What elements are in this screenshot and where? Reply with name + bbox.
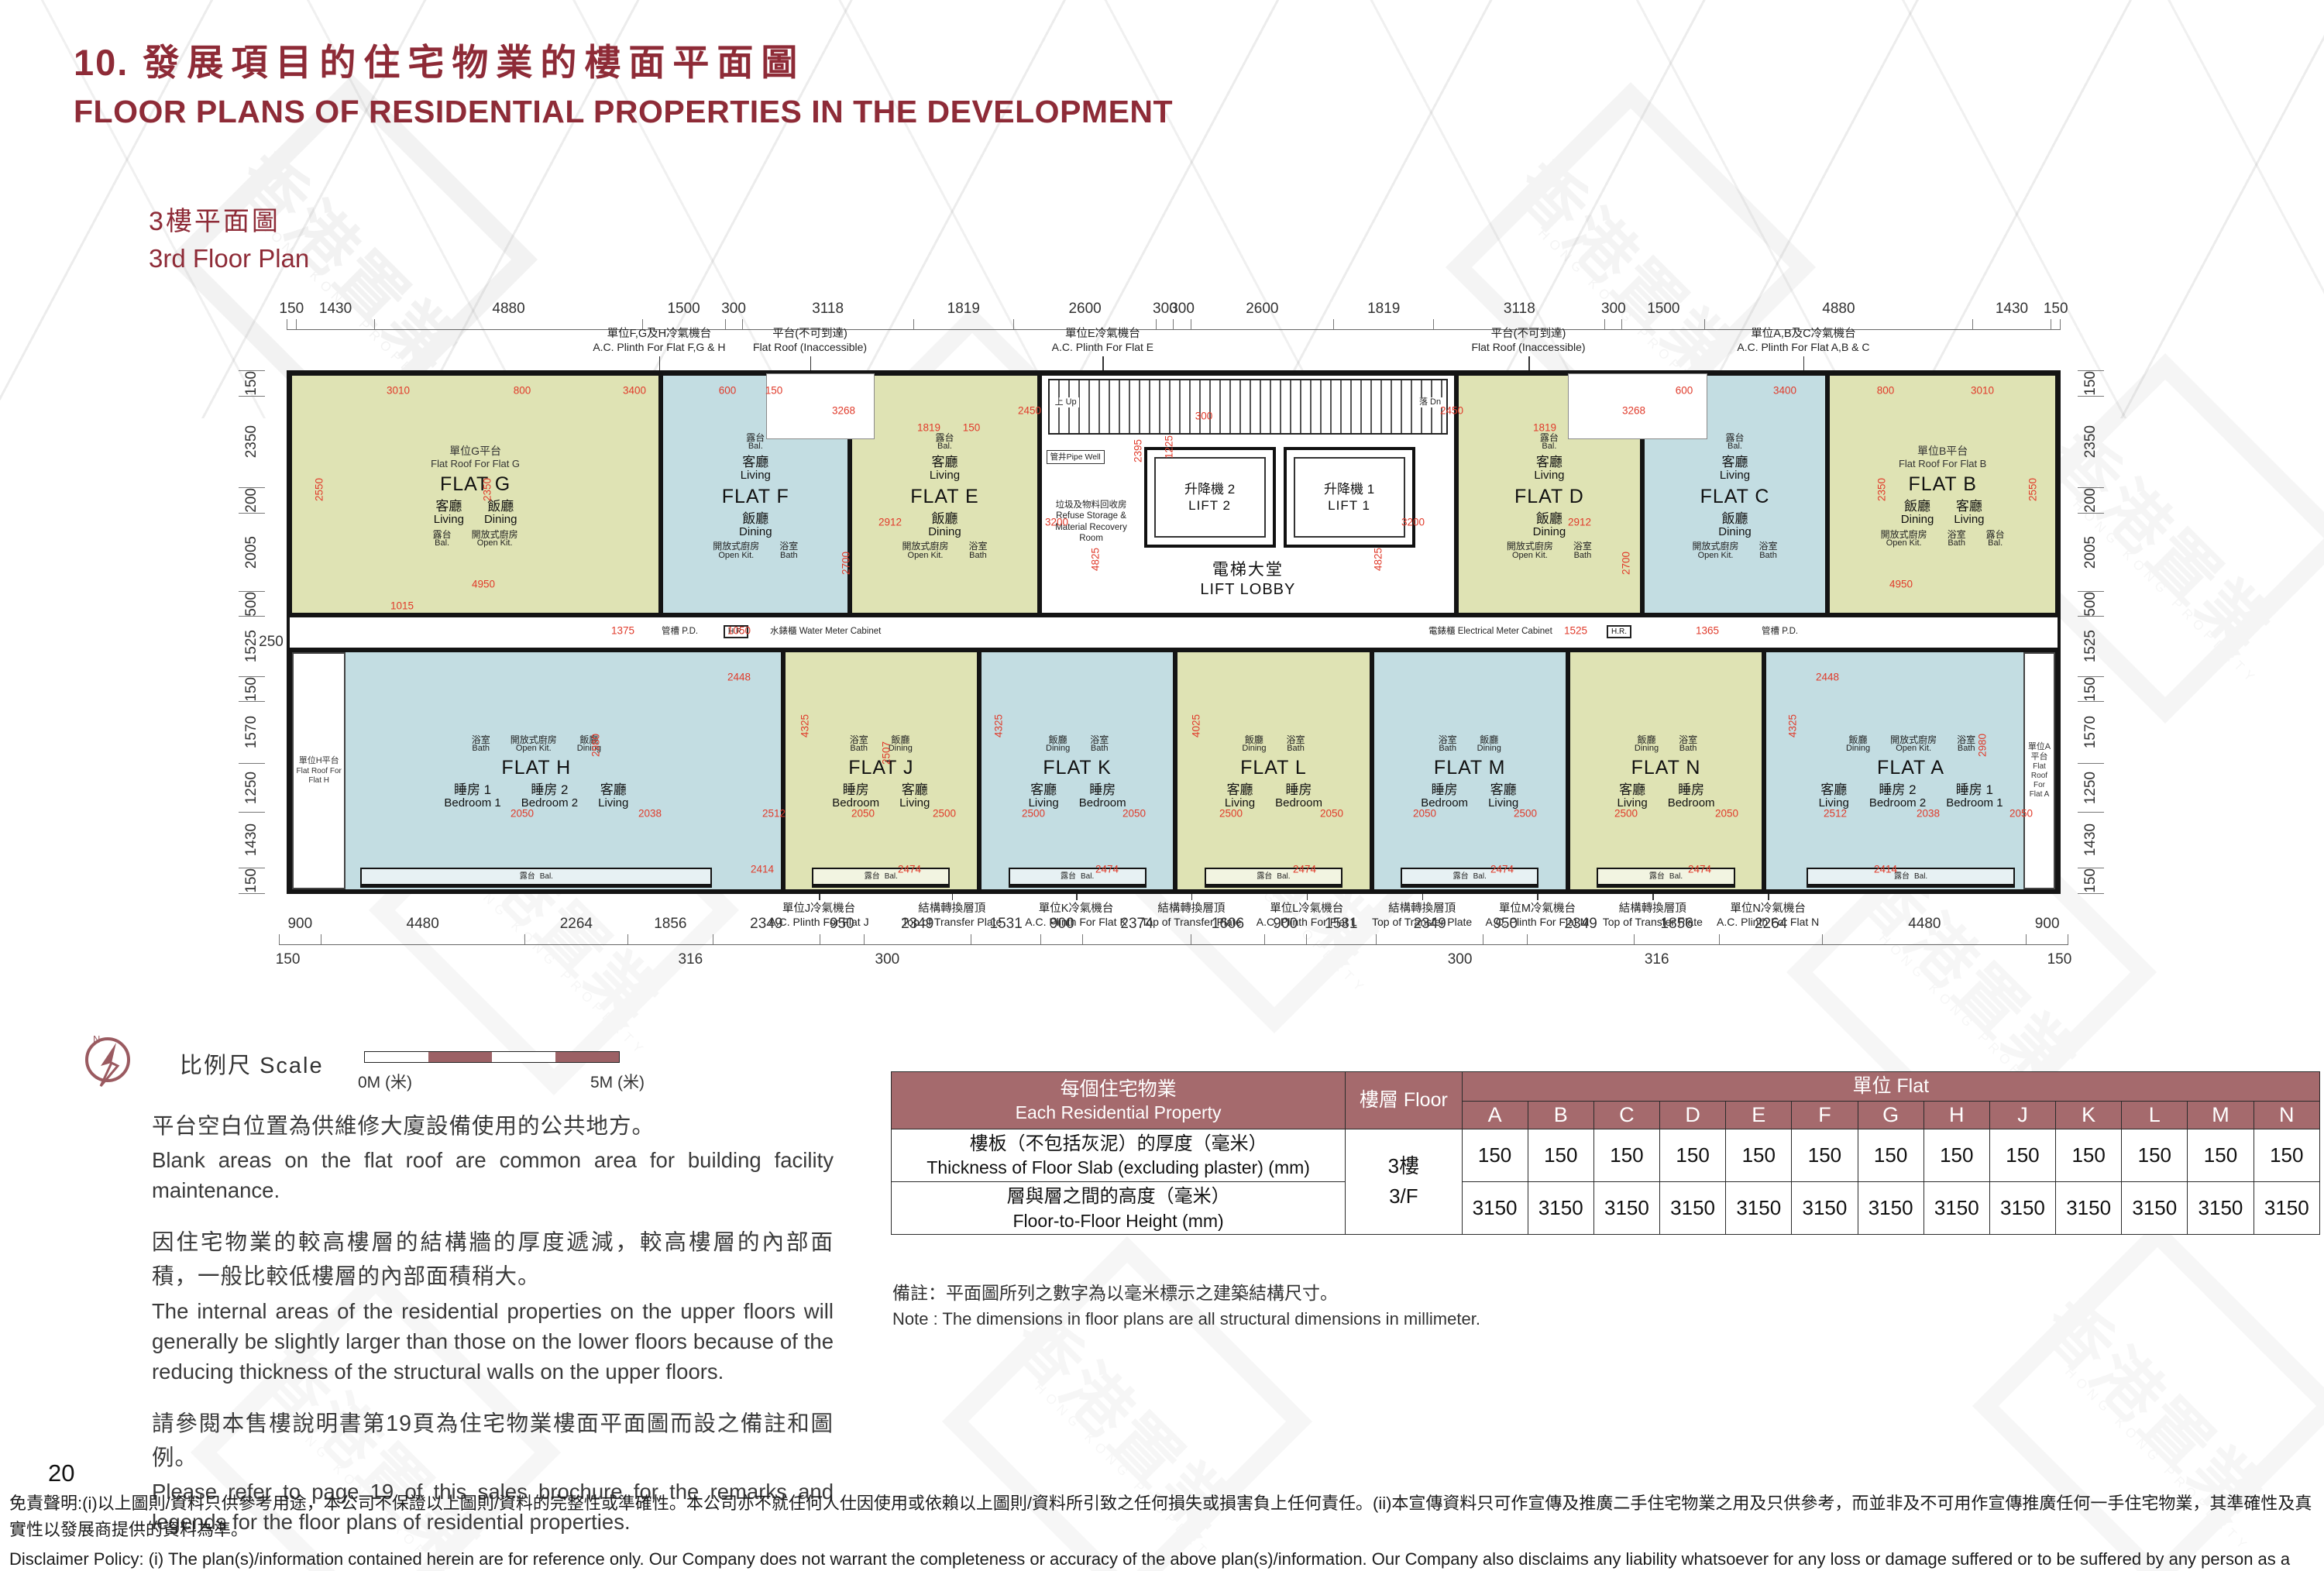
plan-annotation-zh: 單位M冷氣機台	[1486, 902, 1590, 916]
room-label-zh: 睡房	[1668, 782, 1715, 797]
room-label: 客廳Living	[1617, 782, 1647, 810]
row-label-zh: 樓板（不包括灰泥）的厚度（毫米）	[895, 1131, 1342, 1157]
balcony-label-en: Bal.	[885, 873, 898, 881]
flat-name: FLAT A	[1877, 757, 1944, 779]
col-header-property: 每個住宅物業Each Residential Property	[892, 1072, 1346, 1129]
col-header-floor-label: 樓層 Floor	[1349, 1088, 1458, 1113]
flat-roof-inaccessible-area	[766, 373, 875, 439]
red-dimension: 2980	[1977, 734, 1988, 757]
dimension-value: 4480	[407, 916, 439, 933]
red-dimension: 3200	[1045, 517, 1068, 528]
annotation-leader-line	[1191, 894, 1193, 900]
room-label-small-en: Open Kit.	[511, 744, 557, 754]
section-title-en: FLOOR PLANS OF RESIDENTIAL PROPERTIES IN…	[74, 94, 1173, 130]
dimension-segment: 2005	[239, 513, 265, 591]
room-label-small-en: Open Kit.	[1693, 552, 1739, 561]
flat-name: FLAT G	[440, 473, 511, 496]
flat-roof-label: 單位H平台Flat Roof For Flat H	[294, 756, 344, 785]
dimension-value: 2600	[1068, 301, 1101, 318]
value-cell: 150	[1593, 1129, 1659, 1181]
room-label-small-en: Dining	[1242, 744, 1266, 754]
room-label-en: Living	[1534, 469, 1564, 483]
small-labels-row: 露台Bal.	[746, 433, 765, 452]
dimension-value: 900	[287, 916, 312, 933]
dimension-segment: 950	[1483, 934, 1527, 945]
balcony: 露台Bal.	[360, 868, 712, 888]
small-labels-row: 浴室Bath開放式廚房Open Kit.飯廳Dining	[472, 735, 601, 754]
dimension-value: 1525	[243, 630, 260, 662]
room-label-small-en: Bath	[1957, 744, 1975, 754]
dimension-segment: 500	[2078, 591, 2104, 617]
row-label-en: Thickness of Floor Slab (excluding plast…	[895, 1157, 1342, 1180]
dimension-value: 1430	[2082, 823, 2099, 856]
dimension-segment: 4480	[1822, 934, 2026, 945]
room-label-small: 浴室Bath	[1957, 735, 1975, 754]
dimension-segment: 900	[1040, 934, 1082, 945]
room-label-small: 露台Bal.	[1986, 530, 2005, 548]
balcony-label-en: Bal.	[1914, 873, 1927, 881]
red-dimension: 2500	[1022, 808, 1045, 819]
annotation-leader-line	[1537, 894, 1538, 900]
dimension-value: 2349	[1565, 916, 1597, 933]
balcony-label-zh: 露台	[1061, 873, 1076, 881]
room-label-zh: 客廳	[598, 782, 628, 797]
plan-annotation-en: Flat Roof (Inaccessible)	[1471, 341, 1585, 355]
dimension-segment: 200	[239, 487, 265, 513]
dimension-value: 1606	[1212, 916, 1244, 933]
pipe-duct-label: 管槽 P.D.	[662, 627, 698, 638]
dimension-value: 316	[1645, 951, 1669, 968]
brochure-page: 香港置業HONG KONG PROPERTY香港置業HONG KONG PROP…	[0, 0, 2324, 1571]
rooms-row: 客廳Living睡房Bedroom	[1225, 782, 1322, 810]
room-label-zh: 飯廳	[739, 511, 772, 526]
red-dimension: 4950	[472, 579, 495, 590]
flat-name: FLAT F	[722, 486, 789, 508]
dimension-segment: 150	[239, 676, 265, 702]
flat-j: 浴室Bath飯廳DiningFLAT J睡房Bedroom客廳Living露台B…	[783, 650, 979, 892]
room-label-zh: 睡房 1	[444, 782, 500, 797]
dimension-segment: 1430	[1972, 319, 2051, 330]
dimension-segment: 2005	[2078, 513, 2104, 591]
rooms-row: 客廳Living飯廳Dining	[434, 499, 517, 527]
dimension-segment: 2600	[1191, 319, 1333, 330]
red-dimension: 2474	[898, 864, 921, 875]
dimension-segment: 150	[287, 319, 296, 330]
dimension-value: 2374	[1120, 916, 1153, 933]
red-dimension: 3010	[1971, 385, 1994, 396]
lift-lobby-label: 電梯大堂LIFT LOBBY	[1042, 560, 1455, 600]
remark-flat-roof-zh: 平台空白位置為供維修大廈設備使用的公共地方。	[152, 1109, 834, 1143]
room-label-small: 飯廳Dining	[1635, 735, 1659, 754]
flat-letter-b: B	[1528, 1101, 1593, 1129]
room-label-small-en: Bath	[1948, 539, 1966, 548]
room-label-small-en: Open Kit.	[1507, 552, 1553, 561]
dimension-segment: 150	[239, 370, 265, 396]
dimension-value: 150	[276, 951, 301, 968]
annotation-leader-line	[1768, 894, 1769, 900]
room-label-small: 開放式廚房Open Kit.	[472, 530, 518, 548]
dimension-value: 2264	[560, 916, 593, 933]
room-label-small-en: Open Kit.	[713, 552, 759, 561]
dimension-value: 2350	[243, 425, 260, 458]
room-label-zh: 客廳	[899, 782, 930, 797]
dimension-value: 1250	[2082, 772, 2099, 804]
red-dimension: 2500	[1514, 808, 1537, 819]
annotation-leader-line	[1307, 894, 1308, 900]
dimension-value: 1819	[947, 301, 980, 318]
room-label-small-en: Bath	[779, 552, 798, 561]
room-label-small: 開放式廚房Open Kit.	[1693, 541, 1739, 560]
room-label: 睡房Bedroom	[832, 782, 879, 810]
dimension-value: 150	[279, 301, 304, 318]
dimension-value: 1430	[1996, 301, 2028, 318]
lift-1-label-en: LIFT 1	[1328, 497, 1370, 514]
room-label-small: 開放式廚房Open Kit.	[902, 541, 948, 560]
dimension-segment: 950	[820, 934, 864, 945]
dimension-value: 316	[678, 951, 703, 968]
room-label-small: 飯廳Dining	[1242, 735, 1266, 754]
plan-annotation-zh: 單位F,G及H冷氣機台	[593, 327, 725, 341]
flat-roof-strip: 單位A平台Flat Roof For Flat A	[2023, 652, 2055, 889]
room-label-small: 開放式廚房Open Kit.	[713, 541, 759, 560]
room-label-small-en: Bath	[1090, 744, 1109, 754]
room-label-small-en: Bal.	[1986, 539, 2005, 548]
red-dimension: 2474	[1688, 864, 1711, 875]
dimension-value: 300	[1170, 301, 1195, 318]
dimension-value: 2264	[1755, 916, 1787, 933]
building-outline: 單位G平台Flat Roof For Flat GFLAT G客廳Living飯…	[287, 370, 2061, 894]
table-header-row: 每個住宅物業Each Residential Property樓層 Floor單…	[892, 1072, 2320, 1102]
red-dimension: 800	[514, 385, 531, 396]
plan-annotation-zh: 平台(不可到達)	[753, 327, 867, 341]
room-label-en: Dining	[928, 526, 961, 539]
dimension-segment: 900	[2026, 934, 2068, 945]
col-header-property-zh: 每個住宅物業	[895, 1077, 1342, 1102]
room-label-zh: 飯廳	[1901, 499, 1934, 514]
red-dimension: 2050	[851, 808, 875, 819]
dimension-value: 500	[243, 592, 260, 617]
red-dimension: 1375	[611, 625, 634, 636]
dimension-value: 1531	[1325, 916, 1357, 933]
balcony-label-en: Bal.	[540, 873, 553, 881]
value-cell: 3150	[1923, 1181, 1989, 1234]
dimension-segment: 4480	[321, 934, 524, 945]
room-label-small: 浴室Bath	[472, 735, 490, 754]
room-label-zh: 飯廳	[1533, 511, 1566, 526]
lower-flats-band: 浴室Bath開放式廚房Open Kit.飯廳DiningFLAT H睡房 1Be…	[290, 650, 2058, 892]
flat-letter-n: N	[2254, 1101, 2319, 1129]
dimension-value: 2349	[750, 916, 782, 933]
room-label: 客廳Living	[1819, 782, 1849, 810]
remark-flat-roof: 平台空白位置為供維修大廈設備使用的公共地方。 Blank areas on th…	[152, 1109, 834, 1205]
red-dimension: 3200	[1401, 517, 1425, 528]
dimension-value: 4880	[1822, 301, 1855, 318]
room-label-zh: 客廳	[930, 455, 960, 469]
room-label-small: 飯廳Dining	[1477, 735, 1501, 754]
flat-letter-l: L	[2122, 1101, 2188, 1129]
dimension-value: 300	[721, 301, 746, 318]
value-cell: 150	[1726, 1129, 1792, 1181]
red-dimension: 2050	[2009, 808, 2033, 819]
room-label-small: 露台Bal.	[1726, 433, 1745, 452]
dimension-segment: 1430	[296, 319, 375, 330]
dimension-segment: 150	[2078, 370, 2104, 396]
plan-annotation-zh: 結構轉換層頂	[1141, 902, 1241, 916]
flat-roof-label-en: Flat Roof For Flat B	[1899, 458, 1986, 470]
red-dimension: 2050	[1320, 808, 1343, 819]
room-label-en: Living	[1954, 514, 1984, 527]
room-label: 睡房 1Bedroom 1	[444, 782, 500, 810]
value-cell: 150	[1660, 1129, 1726, 1181]
room-label: 客廳Living	[930, 455, 960, 483]
value-cell: 3150	[1528, 1181, 1593, 1234]
red-dimension: 2050	[1413, 808, 1436, 819]
room-label-zh: 睡房 2	[521, 782, 578, 797]
annotation-leader-line	[819, 894, 820, 900]
subtitle-zh: 3樓平面圖	[149, 200, 309, 238]
dimension-column-left: 150235020020055001525150157012501430150	[239, 370, 265, 894]
flat-letter-h: H	[1923, 1101, 1989, 1129]
room-label-small-en: Bal.	[935, 442, 954, 452]
dimension-value: 900	[1273, 916, 1298, 933]
room-label-zh: 客廳	[1819, 782, 1849, 797]
red-dimension: 2050	[1122, 808, 1146, 819]
red-dimension: 2474	[1293, 864, 1316, 875]
dimension-segment: 1430	[2078, 812, 2104, 868]
balcony-label-en: Bal.	[1669, 873, 1683, 881]
rooms-row: 睡房 1Bedroom 1睡房 2Bedroom 2客廳Living	[444, 782, 628, 810]
room-label-zh: 睡房	[832, 782, 879, 797]
room-label-en: Living	[741, 469, 771, 483]
annotation-leader-line	[952, 894, 954, 900]
room-label-small-en: Open Kit.	[1881, 539, 1927, 548]
small-labels-row: 露台Bal.	[1540, 433, 1559, 452]
flat-roof-label-zh: 單位B平台	[1899, 445, 1986, 458]
dimension-value: 900	[1050, 916, 1074, 933]
compass-north-label: N	[93, 1033, 100, 1045]
dimension-value: 1430	[243, 823, 260, 856]
table-note: 備註：平面圖所列之數字為以毫米標示之建築結構尺寸。 Note : The dim…	[892, 1278, 1480, 1329]
room-label-small-en: Dining	[1846, 744, 1870, 754]
flat-letter-c: C	[1593, 1101, 1659, 1129]
dimension-value: 4480	[1908, 916, 1941, 933]
plan-annotation-en: A.C. Plinth For Flat F,G & H	[593, 341, 725, 355]
plan-annotation: 單位E冷氣機台A.C. Plinth For Flat E	[1052, 327, 1153, 355]
dimension-segment: 1531	[971, 934, 1041, 945]
red-dimension: 1819	[917, 422, 940, 433]
flat-name: FLAT E	[910, 486, 978, 508]
red-dimension: 2395	[1133, 439, 1143, 462]
flat-roof-label-en: Flat Roof For Flat G	[431, 458, 520, 470]
value-cell: 150	[2056, 1129, 2122, 1181]
plan-annotation-zh: 單位L冷氣機台	[1257, 902, 1357, 916]
flat-roof-strip: 單位H平台Flat Roof For Flat H	[292, 652, 346, 889]
rooms-row: 睡房Bedroom客廳Living	[832, 782, 930, 810]
dimension-value: 4880	[492, 301, 524, 318]
room-label-small-en: Bath	[1573, 552, 1592, 561]
flat-name: FLAT H	[501, 757, 571, 779]
disclaimer: 免責聲明:(i)以上圖則/資料只供參考用途，本公司不保證以上圖則/資料的完整性或…	[9, 1490, 2318, 1571]
room-label-small: 浴室Bath	[1090, 735, 1109, 754]
dimension-value: 1500	[667, 301, 700, 318]
dimension-value: 950	[1493, 916, 1518, 933]
lift-2-label-en: LIFT 2	[1188, 497, 1231, 514]
plan-annotation-zh: 單位E冷氣機台	[1052, 327, 1153, 341]
row-label-en: Floor-to-Floor Height (mm)	[895, 1210, 1342, 1233]
dimension-value: 950	[830, 916, 854, 933]
room-label: 睡房Bedroom	[1668, 782, 1715, 810]
flat-roof-label: 單位A平台Flat Roof For Flat A	[2025, 742, 2054, 799]
room-label-small: 飯廳Dining	[1846, 735, 1870, 754]
room-label-zh: 睡房 1	[1946, 782, 2003, 797]
annotation-leader-line	[1652, 894, 1654, 900]
table-data-row: 層與層之間的高度（毫米）Floor-to-Floor Height (mm)31…	[892, 1181, 2320, 1234]
room-label-small-en: Bath	[1759, 552, 1778, 561]
water-meter-cabinet-label: 水錶櫃 Water Meter Cabinet	[770, 627, 881, 638]
red-dimension: 4825	[1090, 548, 1101, 571]
room-label-small: 開放式廚房Open Kit.	[1890, 735, 1937, 754]
small-labels-row: 開放式廚房Open Kit.浴室Bath露台Bal.	[1881, 530, 2005, 548]
dimension-segment: 150	[2078, 676, 2104, 702]
flat-name: FLAT L	[1240, 757, 1307, 779]
red-dimension: 3400	[623, 385, 646, 396]
col-header-floor: 樓層 Floor	[1346, 1072, 1462, 1129]
balcony: 露台Bal.	[1009, 868, 1147, 888]
dimension-value: 1856	[1661, 916, 1693, 933]
small-labels-row: 飯廳Dining開放式廚房Open Kit.浴室Bath	[1846, 735, 1975, 754]
disclaimer-zh: 免責聲明:(i)以上圖則/資料只供參考用途，本公司不保證以上圖則/資料的完整性或…	[9, 1490, 2318, 1543]
flat-m: 浴室Bath飯廳DiningFLAT M睡房Bedroom客廳Living露台B…	[1372, 650, 1568, 892]
room-label: 睡房 1Bedroom 1	[1946, 782, 2003, 810]
room-label-zh: 飯廳	[928, 511, 961, 526]
dimension-value: 1570	[243, 716, 260, 748]
room-label-small: 浴室Bath	[779, 541, 798, 560]
flat-roof-label-zh: 單位G平台	[431, 445, 520, 458]
room-label-zh: 客廳	[1720, 455, 1750, 469]
room-label: 飯廳Dining	[1533, 511, 1566, 539]
room-label-small-en: Bath	[1679, 744, 1697, 754]
dimension-value: 1525	[2082, 630, 2099, 662]
value-cell: 3150	[1858, 1181, 1923, 1234]
room-label-zh: 睡房	[1079, 782, 1126, 797]
room-label-en: Living	[598, 797, 628, 810]
dimension-segment: 1430	[239, 812, 265, 868]
value-cell: 3150	[1462, 1181, 1528, 1234]
balcony-label-zh: 露台	[1257, 873, 1272, 881]
staircase	[1048, 379, 1449, 435]
room-label-small: 浴室Bath	[850, 735, 868, 754]
plan-annotation-en: A.C. Plinth For Flat E	[1052, 341, 1153, 355]
balcony-label-en: Bal.	[1081, 873, 1094, 881]
room-label-small-en: Bath	[968, 552, 987, 561]
plan-annotation: 單位A,B及C冷氣機台A.C. Plinth For Flat A,B & C	[1737, 327, 1869, 355]
plan-annotation: 平台(不可到達)Flat Roof (Inaccessible)	[753, 327, 867, 355]
small-labels-row: 開放式廚房Open Kit.浴室Bath	[1693, 541, 1778, 560]
flat-n: 飯廳Dining浴室BathFLAT N客廳Living睡房Bedroom露台B…	[1568, 650, 1764, 892]
room-label-zh: 客廳	[1534, 455, 1564, 469]
red-dimension: 4325	[993, 714, 1004, 737]
dimension-segment: 2264	[1719, 934, 1822, 945]
value-cell: 3150	[2188, 1181, 2254, 1234]
lift-1: 升降機 1LIFT 1	[1284, 447, 1415, 548]
red-dimension: 1015	[390, 600, 414, 611]
room-label: 睡房 2Bedroom 2	[1869, 782, 1926, 810]
plan-annotation-zh: 結構轉換層頂	[1372, 902, 1472, 916]
room-label-small-en: Open Kit.	[472, 539, 518, 548]
balcony-label-zh: 露台	[865, 873, 880, 881]
plan-annotation-zh: 單位J冷氣機台	[768, 902, 868, 916]
room-label-small-en: Dining	[1477, 744, 1501, 754]
dimension-segment: 1856	[1634, 934, 1719, 945]
dimension-value: 200	[2082, 488, 2099, 513]
balcony: 露台Bal.	[1205, 868, 1342, 888]
red-dimension: 4325	[799, 714, 810, 737]
balcony: 露台Bal.	[1597, 868, 1734, 888]
floor-cell-zh: 3樓	[1349, 1151, 1458, 1181]
room-label-small-en: Bath	[1439, 744, 1457, 754]
dimension-value: 150	[2082, 371, 2099, 396]
room-label-small: 浴室Bath	[1759, 541, 1778, 560]
plan-annotation-zh: 結構轉換層頂	[902, 902, 1002, 916]
room-label-zh: 睡房 2	[1869, 782, 1926, 797]
room-label-en: Bedroom	[1668, 797, 1715, 810]
red-dimension: 300	[1195, 411, 1213, 421]
room-label-small-en: Dining	[1046, 744, 1070, 754]
room-label: 客廳Living	[1029, 782, 1059, 810]
plan-annotation-zh: 結構轉換層頂	[1603, 902, 1703, 916]
room-label-small: 開放式廚房Open Kit.	[511, 735, 557, 754]
scale-start: 0M (米)	[358, 1070, 412, 1093]
dimension-segment: 900	[279, 934, 321, 945]
remark-flat-roof-en: Blank areas on the flat roof are common …	[152, 1145, 834, 1205]
red-dimension: 2450	[1440, 405, 1463, 416]
red-dimension: 2512	[762, 808, 786, 819]
small-labels-row: 開放式廚房Open Kit.浴室Bath	[1507, 541, 1592, 560]
section-header: 10.發展項目的住宅物業的樓面平面圖 FLOOR PLANS OF RESIDE…	[74, 33, 1173, 130]
dimension-segment: 2349	[864, 934, 971, 945]
small-labels-row: 露台Bal.	[935, 433, 954, 452]
dimension-segment: 1819	[1333, 319, 1433, 330]
flat-a: 飯廳Dining開放式廚房Open Kit.浴室BathFLAT A客廳Livi…	[1764, 650, 2058, 892]
plan-annotation: 單位F,G及H冷氣機台A.C. Plinth For Flat F,G & H	[593, 327, 725, 355]
red-dimension: 2700	[1621, 552, 1631, 575]
dimension-segment: 1570	[2078, 701, 2104, 762]
small-labels-row: 飯廳Dining浴室Bath	[1046, 735, 1109, 754]
dimension-value: 1250	[243, 772, 260, 804]
col-header-flat: 單位 Flat	[1462, 1072, 2320, 1102]
dimension-value: 1819	[1367, 301, 1400, 318]
dimension-segment: 2264	[524, 934, 627, 945]
dimension-segment: 200	[2078, 487, 2104, 513]
small-labels-row: 露台Bal.	[1726, 433, 1745, 452]
dimension-segment: 2349	[1527, 934, 1634, 945]
flat-name: FLAT K	[1043, 757, 1111, 779]
red-dimension: 2350	[1876, 478, 1887, 501]
dimension-value: 2600	[1246, 301, 1278, 318]
red-dimension: 1819	[1533, 422, 1556, 433]
room-label-small: 浴室Bath	[1439, 735, 1457, 754]
red-dimension: 2700	[841, 552, 851, 575]
flat-roof-label-zh: 單位H平台	[295, 756, 342, 766]
red-dimension: 2050	[1715, 808, 1738, 819]
dimension-value: 1500	[1647, 301, 1679, 318]
annotation-leader-line	[1422, 894, 1424, 900]
red-dimension: 2512	[1824, 808, 1847, 819]
dimension-value: 2005	[243, 536, 260, 569]
room-label-en: Dining	[739, 526, 772, 539]
row-label-zh: 層與層之間的高度（毫米）	[895, 1184, 1342, 1210]
room-label-small: 開放式廚房Open Kit.	[1507, 541, 1553, 560]
